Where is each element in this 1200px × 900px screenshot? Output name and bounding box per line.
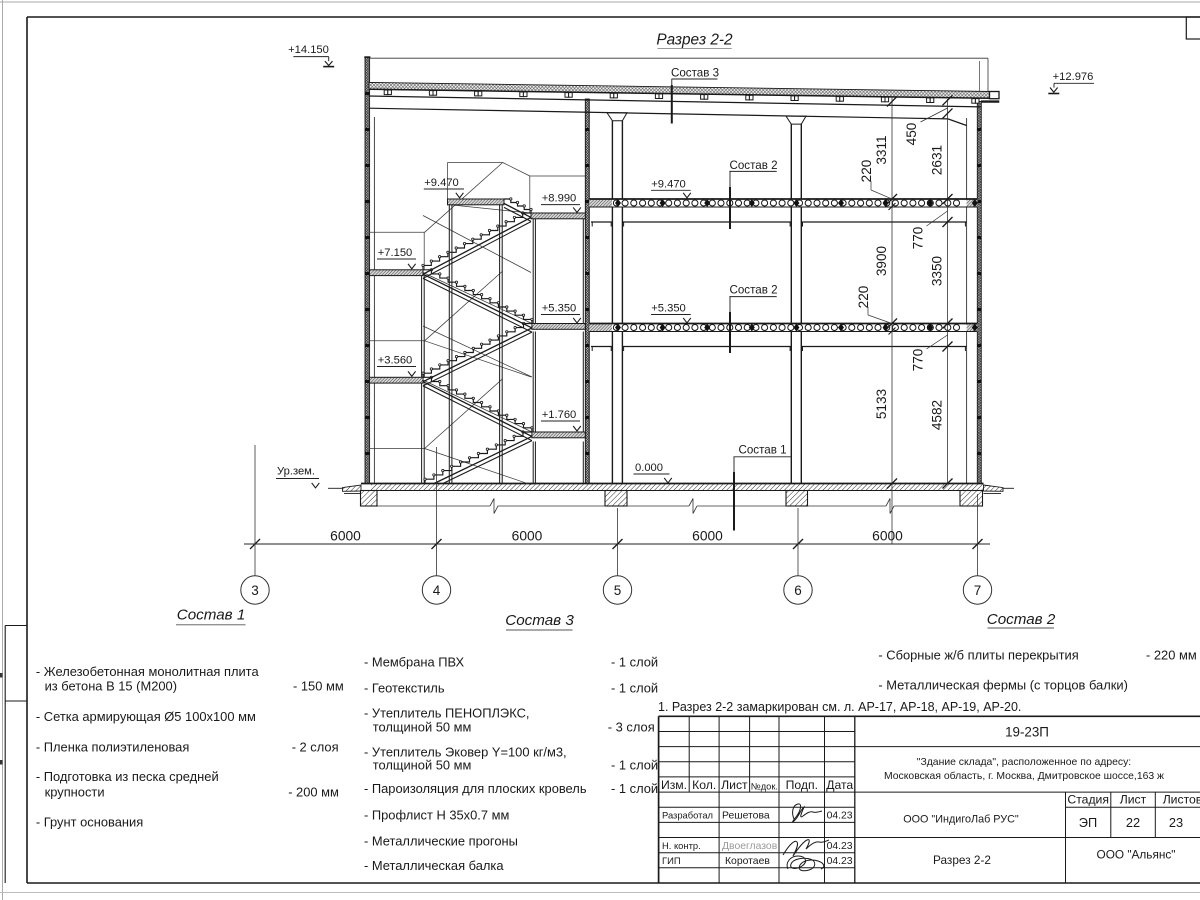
svg-text:из бетона В 15 (М200): из бетона В 15 (М200) xyxy=(45,679,177,694)
svg-text:6000: 6000 xyxy=(692,529,723,544)
svg-text:220: 220 xyxy=(859,159,874,182)
svg-text:6000: 6000 xyxy=(330,529,361,544)
svg-text:- 1 слой: - 1 слой xyxy=(611,654,658,669)
svg-text:№док.: №док. xyxy=(751,782,778,792)
svg-text:23: 23 xyxy=(1169,815,1183,830)
svg-text:770: 770 xyxy=(911,226,926,249)
svg-text:Состав 3: Состав 3 xyxy=(671,66,719,79)
svg-text:6: 6 xyxy=(794,583,802,598)
svg-text:4: 4 xyxy=(433,583,441,598)
svg-text:1. Разрез 2-2 замаркирован см.: 1. Разрез 2-2 замаркирован см. л. АР-17,… xyxy=(658,700,1021,714)
svg-text:Лист: Лист xyxy=(721,778,748,792)
svg-text:Состав 2: Состав 2 xyxy=(729,159,777,172)
svg-text:+1.760: +1.760 xyxy=(542,409,577,421)
svg-text:04.23: 04.23 xyxy=(827,856,853,867)
svg-text:- Металлическая балка: - Металлическая балка xyxy=(364,858,504,873)
svg-text:5133: 5133 xyxy=(874,389,889,419)
svg-text:Подп.: Подп. xyxy=(786,778,818,792)
svg-text:- Грунт основания: - Грунт основания xyxy=(36,815,143,830)
svg-text:Изм.: Изм. xyxy=(661,778,687,792)
svg-text:Дата: Дата xyxy=(826,778,853,792)
svg-text:Кол.: Кол. xyxy=(692,778,716,792)
svg-text:+9.470: +9.470 xyxy=(424,177,459,189)
svg-text:ООО "ИндигоЛаб РУС": ООО "ИндигоЛаб РУС" xyxy=(903,814,1019,826)
svg-text:- Металлическая фермы (с торцо: - Металлическая фермы (с торцов балки) xyxy=(878,678,1127,693)
svg-text:3350: 3350 xyxy=(930,255,945,286)
svg-text:220: 220 xyxy=(856,285,871,308)
svg-text:Двоеглазов: Двоеглазов xyxy=(722,841,778,852)
svg-text:Решетова: Решетова xyxy=(722,810,770,821)
svg-text:- 2 слоя: - 2 слоя xyxy=(292,740,339,755)
svg-text:Состав 3: Состав 3 xyxy=(505,612,574,629)
svg-text:- 1 слой: - 1 слой xyxy=(611,758,658,773)
svg-text:+5.350: +5.350 xyxy=(651,303,686,315)
svg-text:Стадия: Стадия xyxy=(1067,793,1109,807)
svg-text:крупности: крупности xyxy=(45,785,105,800)
svg-text:3311: 3311 xyxy=(874,135,889,164)
svg-text:Коротаев: Коротаев xyxy=(725,856,770,867)
svg-text:Н. контр.: Н. контр. xyxy=(662,840,701,851)
svg-text:- Пароизоляция для плоских кро: - Пароизоляция для плоских кровель xyxy=(364,781,587,796)
svg-text:3: 3 xyxy=(251,583,259,598)
svg-text:- Мембрана ПВХ: - Мембрана ПВХ xyxy=(364,654,465,669)
svg-text:+12.976: +12.976 xyxy=(1053,71,1094,83)
svg-text:5: 5 xyxy=(614,583,622,598)
svg-text:19-23П: 19-23П xyxy=(1005,725,1049,740)
svg-text:+14.150: +14.150 xyxy=(288,44,329,56)
svg-text:Московская область, г. Москва,: Московская область, г. Москва, Дмитровск… xyxy=(884,770,1164,782)
svg-text:0.000: 0.000 xyxy=(635,462,663,474)
svg-text:- Подготовка из песка средней: - Подготовка из песка средней xyxy=(36,769,219,784)
svg-text:- 3 слоя: - 3 слоя xyxy=(608,719,655,734)
svg-text:Ур.зем.: Ур.зем. xyxy=(277,466,315,478)
svg-text:- Профлист Н 35х0.7 мм: - Профлист Н 35х0.7 мм xyxy=(364,808,509,823)
svg-text:- 1 слой: - 1 слой xyxy=(611,680,658,695)
svg-text:22: 22 xyxy=(1126,815,1140,830)
svg-text:толщиной 50 мм: толщиной 50 мм xyxy=(373,719,472,734)
svg-text:ЭП: ЭП xyxy=(1079,815,1097,830)
svg-text:Состав 2: Состав 2 xyxy=(987,611,1056,628)
svg-text:Листов: Листов xyxy=(1163,793,1200,807)
svg-text:Лист: Лист xyxy=(1120,793,1147,807)
svg-text:770: 770 xyxy=(911,348,926,371)
svg-text:+5.350: +5.350 xyxy=(542,303,577,315)
svg-text:Состав 2: Состав 2 xyxy=(729,283,777,296)
svg-text:Состав 1: Состав 1 xyxy=(177,607,246,624)
svg-text:7: 7 xyxy=(974,583,982,598)
svg-text:Разрез 2-2: Разрез 2-2 xyxy=(656,32,733,49)
svg-text:- 1 слой: - 1 слой xyxy=(611,781,658,796)
svg-text:- Сетка армирующая Ø5 100х100: - Сетка армирующая Ø5 100х100 мм xyxy=(36,709,256,724)
svg-text:"Здание склада", расположенное: "Здание склада", расположенное по адресу… xyxy=(917,757,1131,768)
svg-text:3900: 3900 xyxy=(874,245,889,276)
svg-text:Разработал: Разработал xyxy=(662,809,713,820)
svg-text:толщиной 50 мм: толщиной 50 мм xyxy=(373,758,472,773)
svg-text:- Геотекстиль: - Геотекстиль xyxy=(364,680,445,695)
svg-text:+9.470: +9.470 xyxy=(651,178,686,190)
svg-text:4582: 4582 xyxy=(930,400,945,430)
svg-text:+3.560: +3.560 xyxy=(378,355,413,367)
svg-text:- 150 мм: - 150 мм xyxy=(293,679,344,694)
svg-text:- Железобетонная монолитная п: - Железобетонная монолитная плита xyxy=(36,664,260,679)
svg-text:+7.150: +7.150 xyxy=(378,247,413,259)
svg-text:- Сборные ж/б плиты перекрытия: - Сборные ж/б плиты перекрытия xyxy=(878,647,1078,662)
svg-text:450: 450 xyxy=(904,122,919,145)
svg-text:- Утеплитель ПЕНОПЛЭКС,: - Утеплитель ПЕНОПЛЭКС, xyxy=(364,705,529,720)
svg-text:ООО "Альянс": ООО "Альянс" xyxy=(1097,847,1176,861)
svg-text:- Металлические прогоны: - Металлические прогоны xyxy=(364,834,518,849)
svg-text:2631: 2631 xyxy=(930,145,945,175)
svg-text:6000: 6000 xyxy=(872,529,903,544)
svg-text:04.23: 04.23 xyxy=(827,841,853,852)
svg-text:Разрез 2-2: Разрез 2-2 xyxy=(933,853,991,867)
svg-text:- 220 мм: - 220 мм xyxy=(1146,647,1197,662)
svg-text:+8.990: +8.990 xyxy=(542,193,577,205)
svg-text:- Пленка полиэтиленовая: - Пленка полиэтиленовая xyxy=(36,740,189,755)
svg-text:ГИП: ГИП xyxy=(662,855,681,866)
svg-text:- 200 мм: - 200 мм xyxy=(288,785,339,800)
svg-text:6000: 6000 xyxy=(512,529,543,544)
svg-text:04.23: 04.23 xyxy=(827,811,853,822)
svg-text:Состав 1: Состав 1 xyxy=(738,443,786,456)
